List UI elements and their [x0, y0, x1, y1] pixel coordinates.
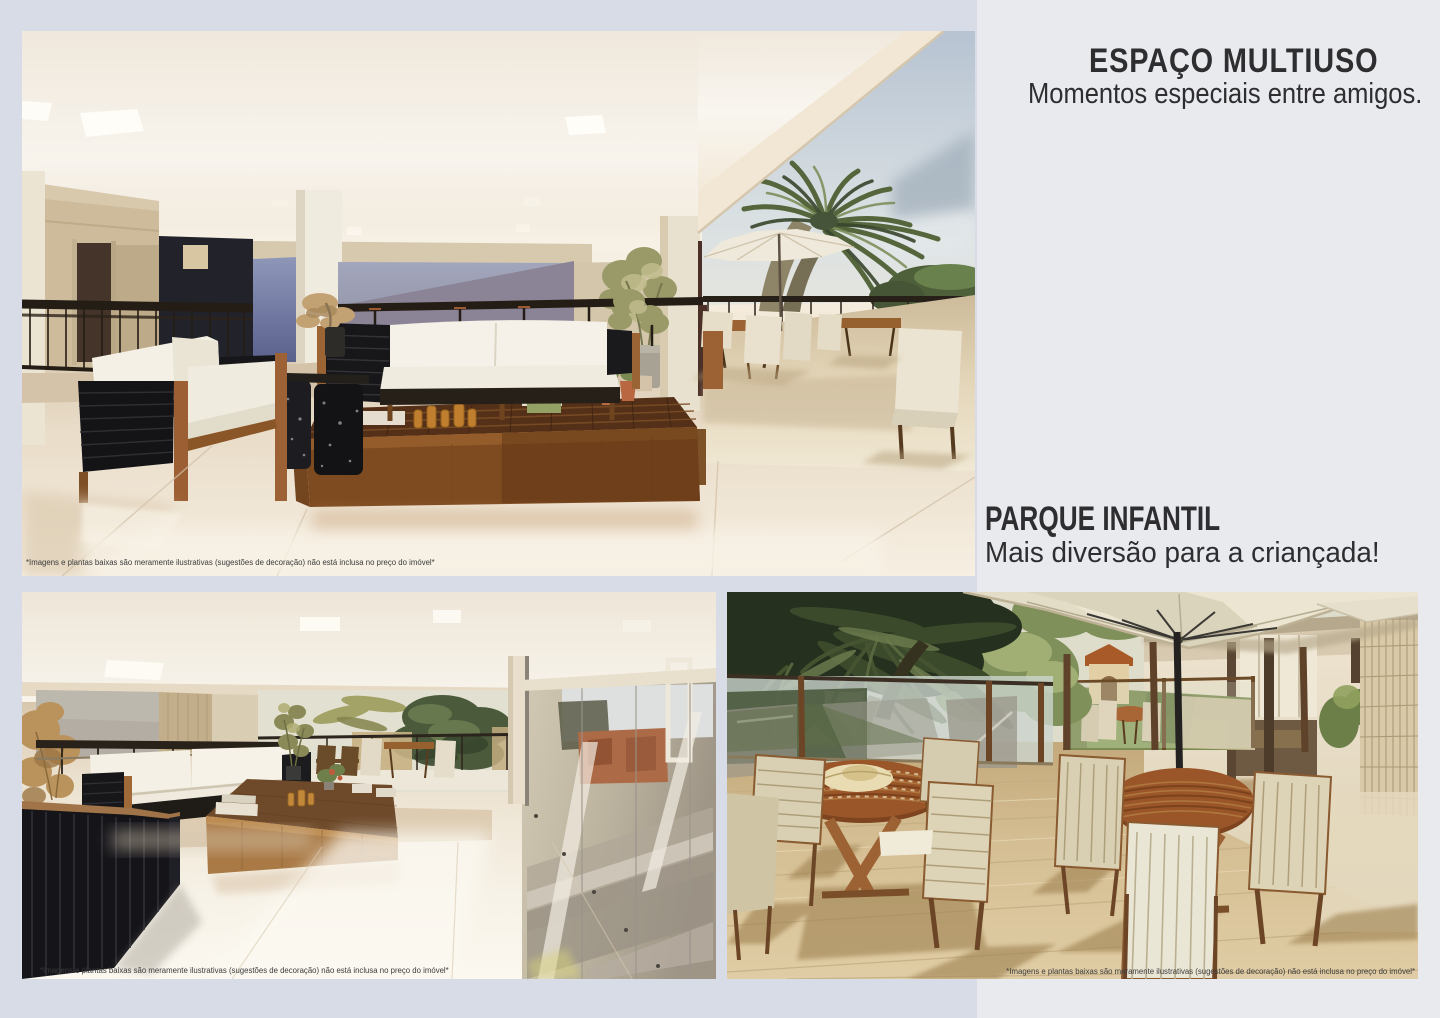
svg-text:*Imagens e plantas baixas são: *Imagens e plantas baixas são meramente …	[26, 558, 435, 567]
svg-text:*Imagens e plantas baixas são: *Imagens e plantas baixas são meramente …	[40, 966, 449, 975]
svg-text:*Imagens e plantas baixas são: *Imagens e plantas baixas são meramente …	[1006, 967, 1415, 976]
